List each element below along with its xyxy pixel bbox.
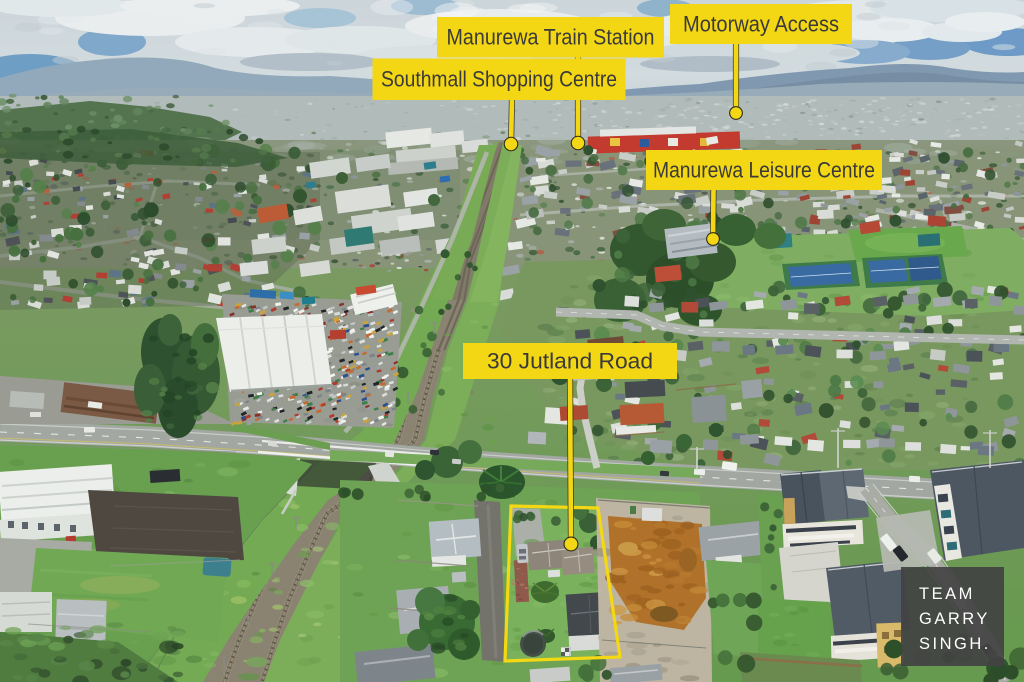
svg-text:Southmall Shopping Centre: Southmall Shopping Centre: [381, 67, 617, 92]
svg-text:Motorway Access: Motorway Access: [683, 12, 839, 37]
svg-text:SINGH.: SINGH.: [919, 635, 991, 653]
svg-text:TEAM: TEAM: [919, 585, 975, 603]
svg-text:Manurewa Leisure Centre: Manurewa Leisure Centre: [653, 158, 875, 183]
svg-text:30 Jutland Road: 30 Jutland Road: [487, 349, 653, 374]
svg-text:Manurewa Train Station: Manurewa Train Station: [447, 25, 655, 50]
svg-text:GARRY: GARRY: [919, 610, 990, 628]
